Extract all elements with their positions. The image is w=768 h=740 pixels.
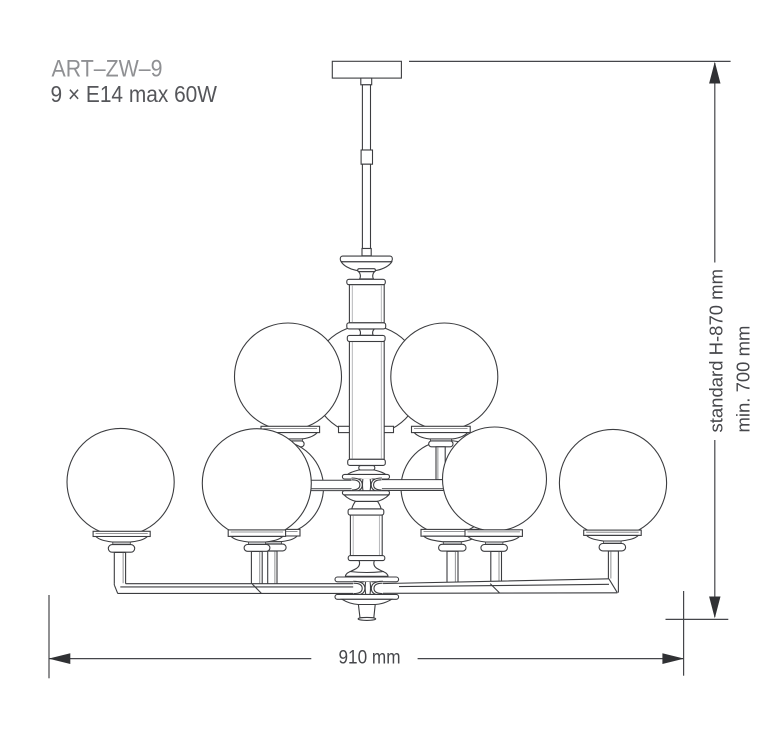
svg-text:ART–ZW–9: ART–ZW–9 <box>52 56 163 83</box>
svg-text:910 mm: 910 mm <box>339 648 401 669</box>
svg-text:min. 700 mm: min. 700 mm <box>733 326 754 433</box>
svg-text:9 × E14 max 60W: 9 × E14 max 60W <box>51 81 218 107</box>
svg-text:standard H-870 mm: standard H-870 mm <box>706 269 727 432</box>
